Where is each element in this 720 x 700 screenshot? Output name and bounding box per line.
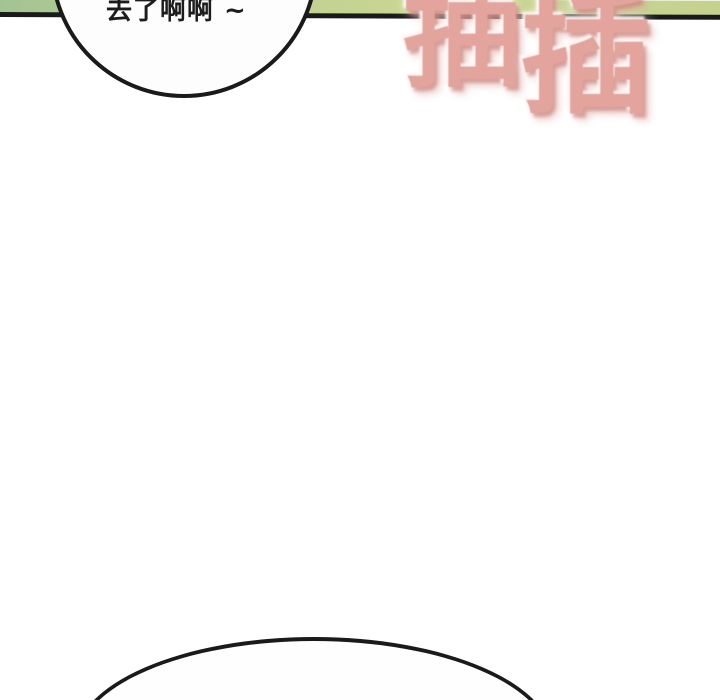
sfx-character-2: 插	[520, 0, 652, 122]
dialogue-text: 去了啊啊 ~	[106, 0, 247, 27]
speech-bubble-top: 去了啊啊 ~	[50, 0, 318, 98]
speech-bubble-bottom	[74, 637, 554, 700]
comic-panel: 抽 插 去了啊啊 ~	[0, 0, 720, 700]
sfx-character-1: 抽	[403, 0, 521, 94]
